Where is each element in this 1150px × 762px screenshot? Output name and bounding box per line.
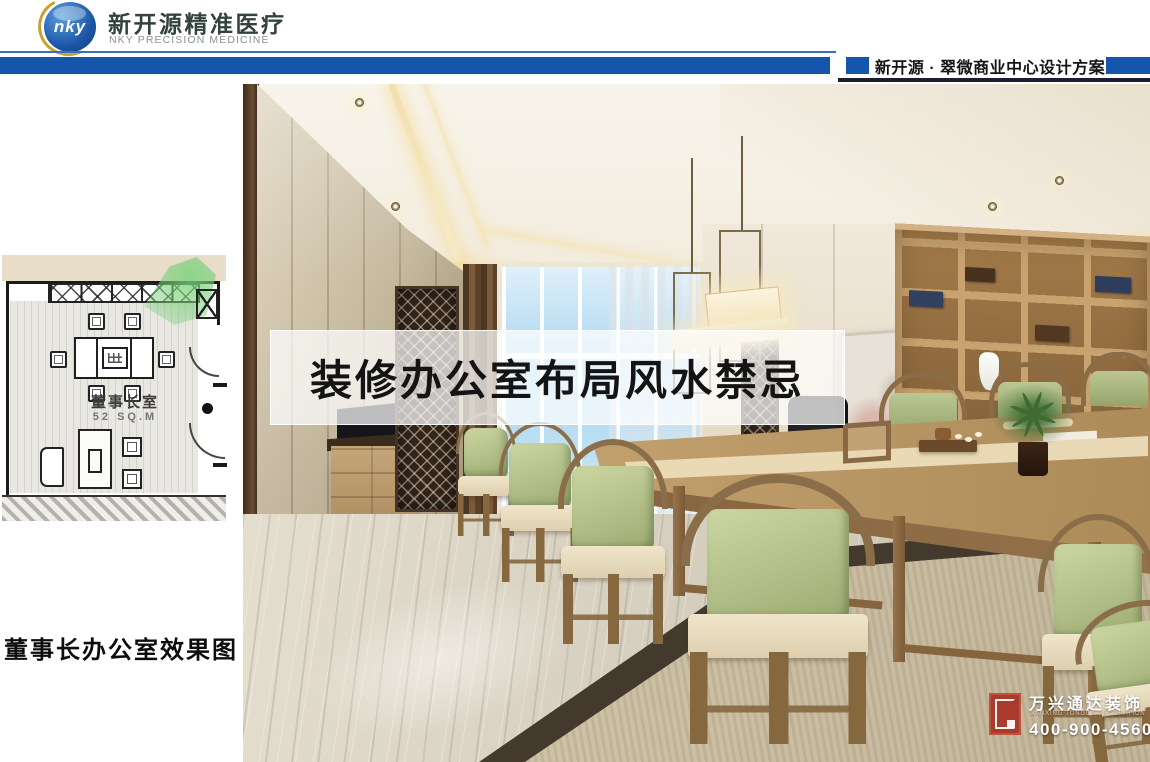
header-blue-bar bbox=[0, 57, 830, 74]
plan-room-label: 董事长室 bbox=[60, 391, 190, 412]
green-pillow bbox=[1089, 615, 1150, 697]
plan-table bbox=[74, 337, 154, 379]
watermark-phone: 400-900-4560 bbox=[1029, 720, 1150, 740]
teacup bbox=[965, 437, 972, 442]
title-overlay: 装修办公室布局风水禁忌 bbox=[270, 330, 845, 425]
brand-name-en: NKY PRECISION MEDICINE bbox=[109, 34, 270, 46]
green-pillow bbox=[572, 466, 654, 552]
table-leg bbox=[893, 516, 905, 662]
plan-column bbox=[196, 289, 218, 319]
decorator-watermark: 万兴通达装饰 WANXING TONGDA DECORATION 400-900… bbox=[989, 690, 1150, 752]
render-caption: 董事长办公室效果图 bbox=[4, 630, 238, 665]
ceiling-spotlight-icon bbox=[391, 202, 400, 211]
chair-legs bbox=[690, 652, 866, 744]
plan-wall bbox=[213, 383, 227, 387]
header-blue-block-left bbox=[846, 57, 869, 74]
plan-table-inset bbox=[102, 347, 128, 369]
project-title: 新开源 · 翠微商业中心设计方案 bbox=[872, 54, 1108, 78]
plan-column-dot bbox=[202, 403, 213, 414]
plan-chair bbox=[158, 351, 175, 368]
plan-wall bbox=[213, 463, 227, 467]
dining-chair-foreground bbox=[673, 474, 883, 744]
potted-plant bbox=[985, 382, 1081, 482]
plan-door-inset bbox=[88, 449, 102, 473]
book-row bbox=[1035, 325, 1069, 343]
green-pillow bbox=[1090, 371, 1148, 406]
design-proposal-slide: nky 新开源精准医疗 NKY PRECISION MEDICINE 新开源 ·… bbox=[0, 0, 1150, 762]
plan-side-table bbox=[122, 437, 142, 457]
watermark-company-en: WANXING TONGDA DECORATION bbox=[1029, 711, 1145, 717]
ceiling-spotlight-icon bbox=[988, 202, 997, 211]
plan-sofa bbox=[40, 447, 64, 487]
plan-chair bbox=[124, 313, 141, 330]
plan-side-table bbox=[122, 469, 142, 489]
table-stand bbox=[843, 420, 891, 463]
plan-door bbox=[78, 429, 112, 489]
plan-terrace-hatch bbox=[2, 495, 226, 521]
teapot bbox=[935, 428, 951, 440]
book-row bbox=[909, 290, 943, 308]
wanxing-logo-icon bbox=[989, 693, 1021, 735]
plan-chair bbox=[88, 313, 105, 330]
chair-legs bbox=[563, 574, 664, 644]
teacup bbox=[975, 432, 982, 437]
lamp-stem bbox=[741, 136, 743, 232]
floor-plan: 董事长室 52 SQ.M bbox=[2, 255, 226, 527]
ceiling-spotlight-icon bbox=[355, 98, 364, 107]
ceiling-spotlight-icon bbox=[1055, 176, 1064, 185]
book-row bbox=[965, 267, 995, 283]
dining-chair bbox=[553, 439, 673, 644]
seat-cushion bbox=[688, 614, 869, 657]
green-pillow bbox=[707, 509, 850, 622]
header-dark-rule bbox=[838, 78, 1150, 82]
header-blue-block-right bbox=[1106, 57, 1150, 74]
nky-logo-icon: nky bbox=[44, 2, 96, 52]
lamp-stem bbox=[691, 158, 693, 274]
plan-area-label: 52 SQ.M bbox=[60, 411, 190, 423]
book-row bbox=[1095, 276, 1131, 294]
overlay-title: 装修办公室布局风水禁忌 bbox=[310, 347, 805, 408]
header-thin-rule bbox=[0, 51, 836, 53]
teacup bbox=[955, 434, 962, 439]
plant-pot bbox=[1018, 442, 1048, 476]
plan-wall bbox=[6, 281, 9, 499]
plan-chair bbox=[50, 351, 67, 368]
